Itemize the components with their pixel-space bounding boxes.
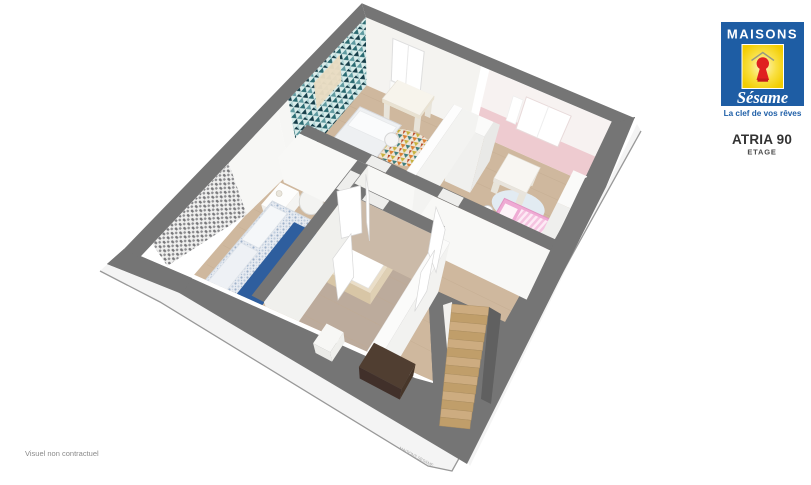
svg-text:MAISONS: MAISONS <box>727 27 798 42</box>
svg-text:La clef de vos rêves: La clef de vos rêves <box>724 109 802 118</box>
svg-text:Visuel non contractuel: Visuel non contractuel <box>25 449 99 458</box>
svg-text:Sésame: Sésame <box>737 88 788 107</box>
svg-text:ETAGE: ETAGE <box>747 148 776 157</box>
svg-text:ATRIA 90: ATRIA 90 <box>732 132 792 147</box>
